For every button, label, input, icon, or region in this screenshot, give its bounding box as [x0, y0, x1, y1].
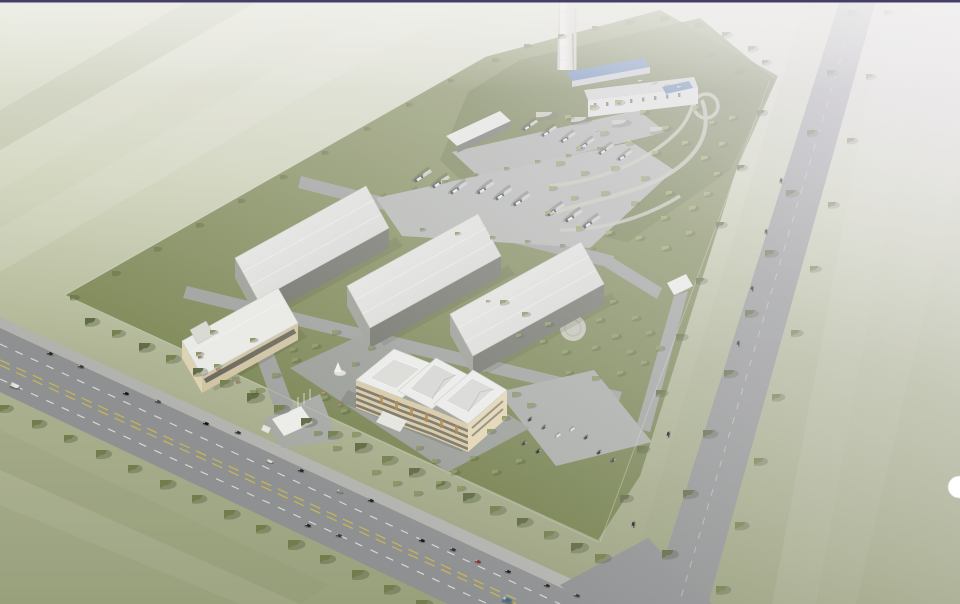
rendering-canvas: [0, 0, 960, 604]
horizon-haze: [0, 0, 960, 90]
haze-overlay: [0, 0, 960, 604]
top-border: [0, 0, 960, 3]
aerial-rendering: [0, 0, 960, 604]
